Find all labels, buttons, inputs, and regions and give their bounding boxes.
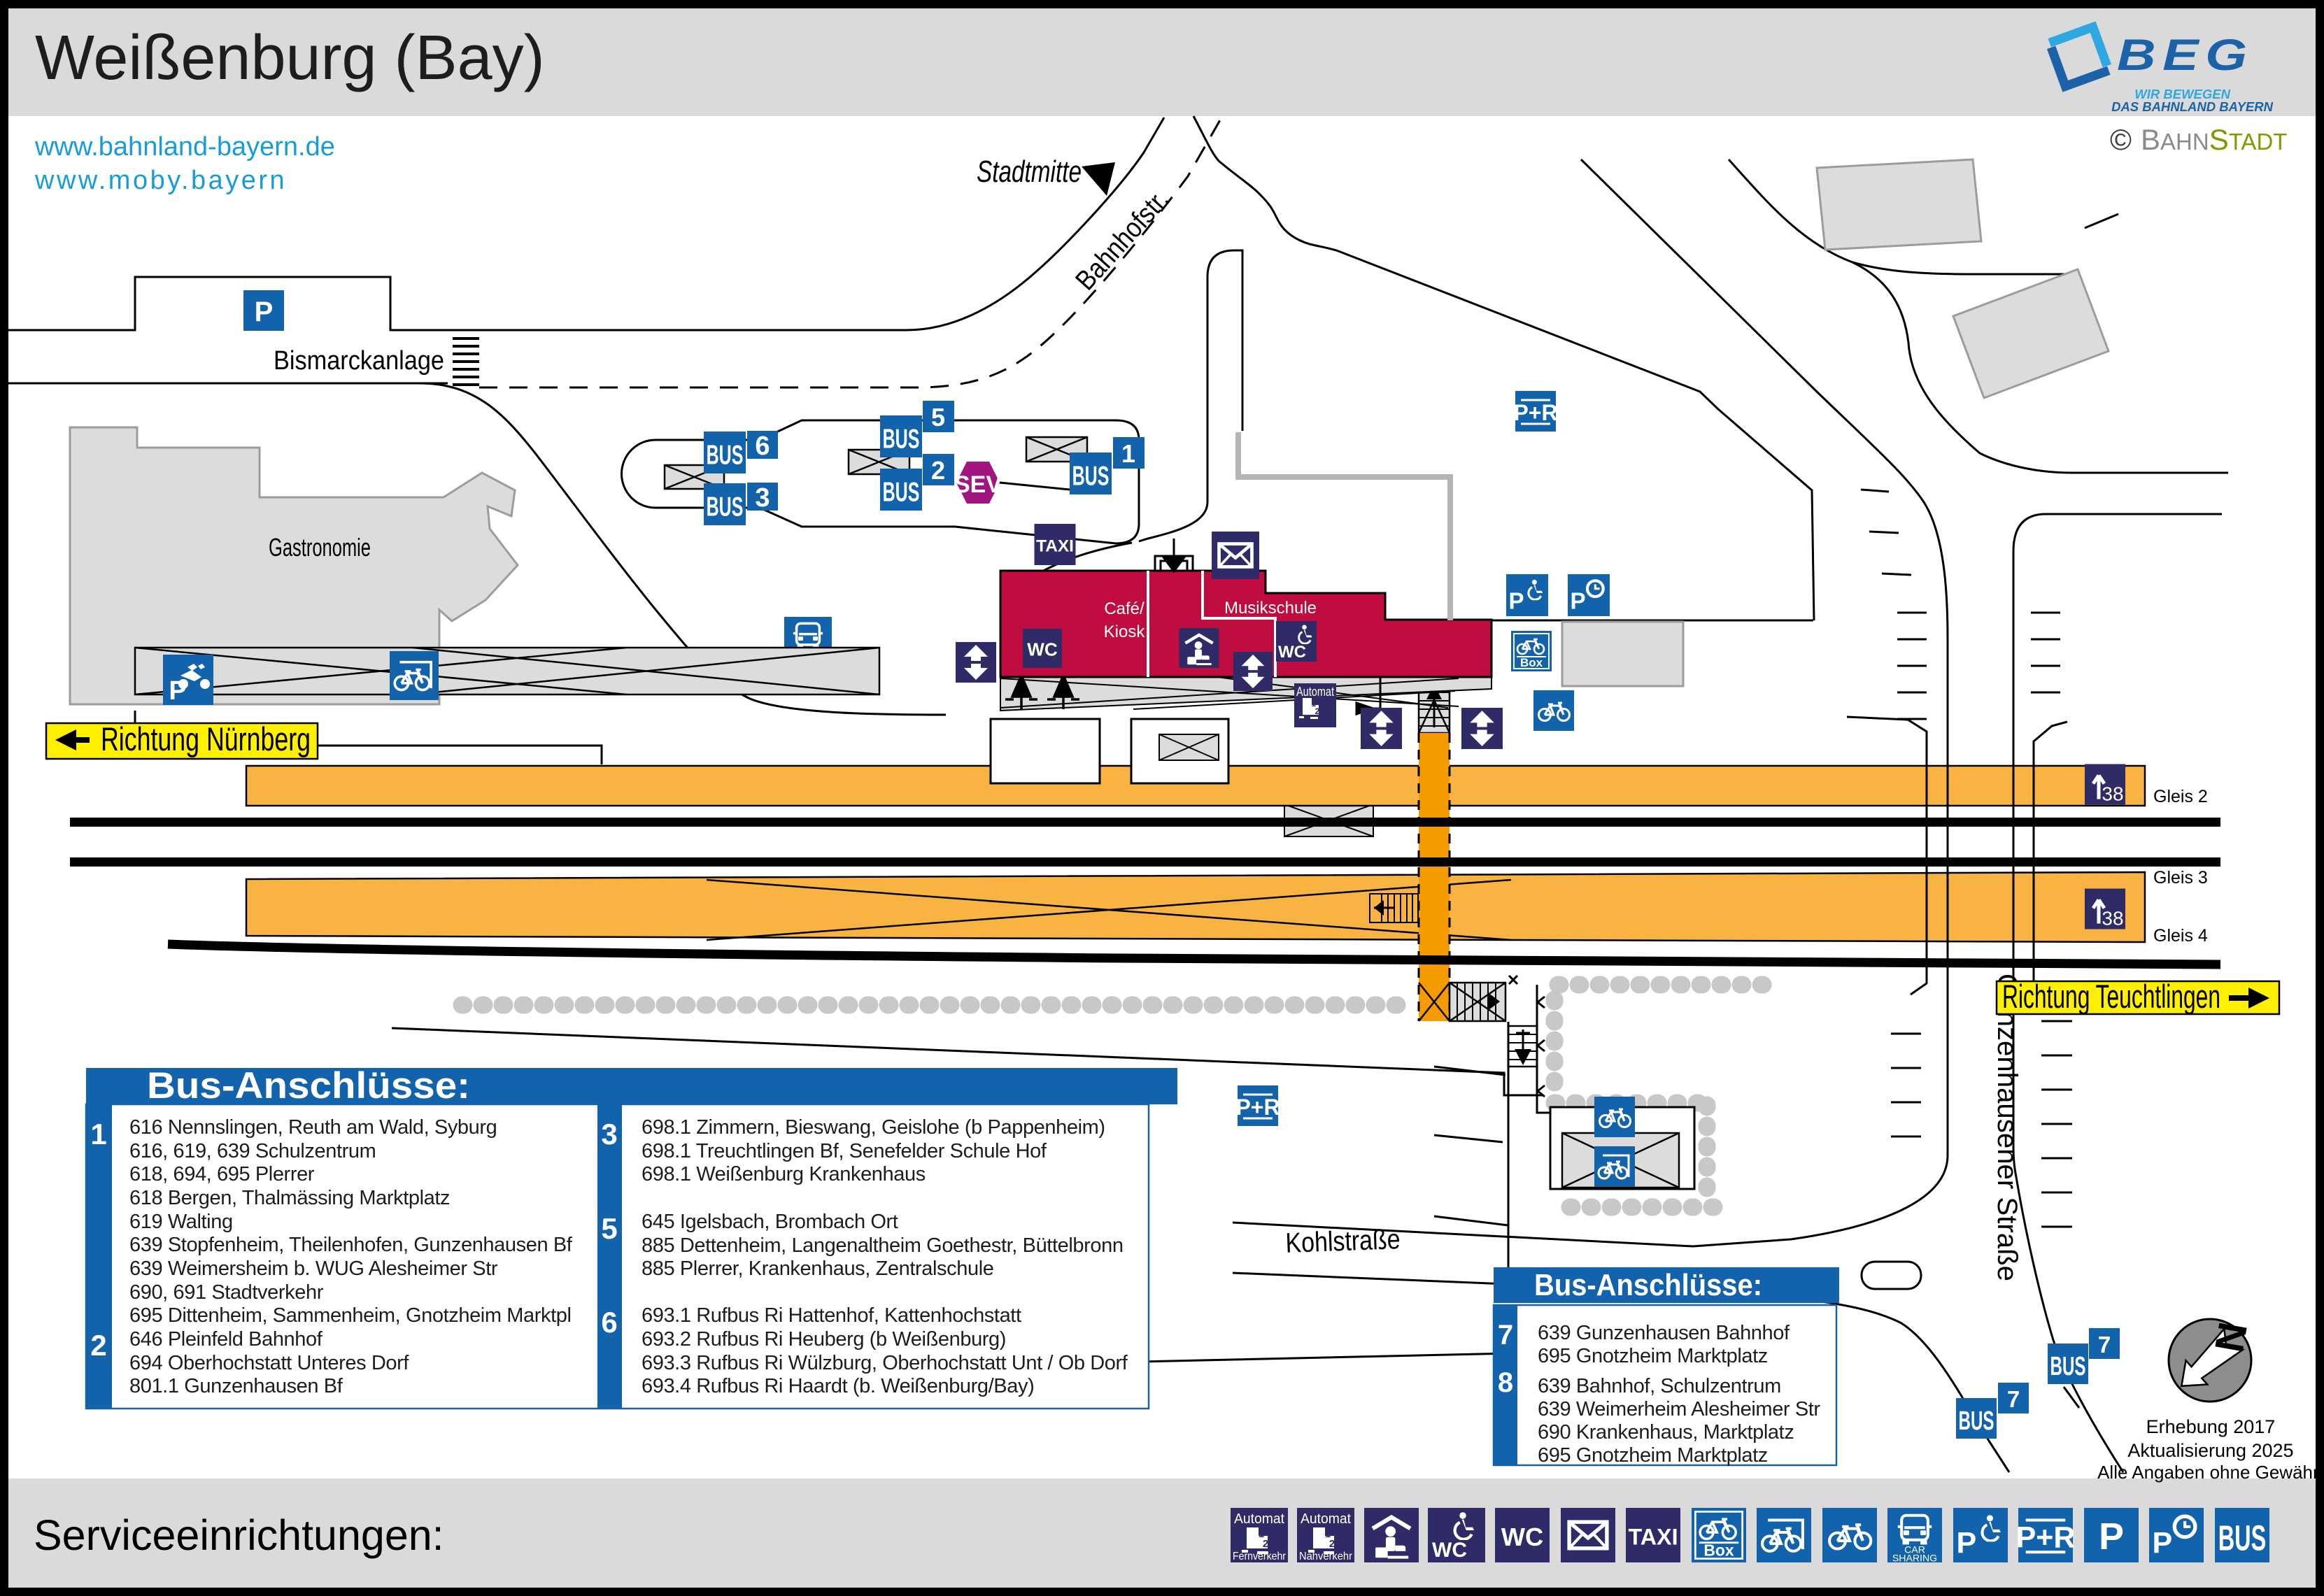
svg-text:Kohlstraße: Kohlstraße [1285, 1224, 1401, 1259]
svg-text:Automat: Automat [1234, 1511, 1284, 1527]
svg-text:3: 3 [755, 483, 770, 513]
svg-text:5: 5 [931, 403, 945, 432]
svg-text:698.1 Zimmern, Bieswang, Geisl: 698.1 Zimmern, Bieswang, Geislohe (b Pap… [642, 1116, 1105, 1139]
svg-text:Café/: Café/ [1104, 599, 1145, 618]
svg-text:619 Walting: 619 Walting [129, 1211, 233, 1233]
svg-text:695 Gnotzheim Marktplatz: 695 Gnotzheim Marktplatz [1538, 1444, 1768, 1467]
svg-text:639 Weimerheim Alesheimer Str: 639 Weimerheim Alesheimer Str [1538, 1398, 1820, 1420]
svg-text:2: 2 [1329, 1538, 1335, 1550]
svg-text:Bus-Anschlüsse:: Bus-Anschlüsse: [1534, 1268, 1762, 1302]
svg-text:WC: WC [1278, 643, 1306, 662]
svg-text:3: 3 [601, 1118, 617, 1150]
svg-text:5: 5 [601, 1212, 617, 1245]
svg-text:Weißenburg (Bay): Weißenburg (Bay) [35, 23, 545, 93]
svg-text:695 Gnotzheim Marktplatz: 695 Gnotzheim Marktplatz [1538, 1345, 1768, 1367]
svg-text:1: 1 [90, 1118, 106, 1150]
svg-text:Nahverkehr: Nahverkehr [1299, 1551, 1353, 1562]
svg-text:6: 6 [601, 1306, 617, 1339]
svg-text:693.4 Rufbus Ri Haardt (b. Wei: 693.4 Rufbus Ri Haardt (b. Weißenburg/Ba… [642, 1375, 1034, 1397]
svg-text:6: 6 [755, 432, 770, 461]
svg-text:639 Weimersheim b. WUG Aleshei: 639 Weimersheim b. WUG Alesheimer Str [129, 1257, 498, 1280]
svg-text:Musikschule: Musikschule [1224, 599, 1317, 618]
svg-text:Bismarckanlage: Bismarckanlage [274, 346, 444, 376]
svg-text:Serviceeinrichtungen:: Serviceeinrichtungen: [34, 1511, 444, 1559]
svg-text:693.2 Rufbus Ri Heuberg (b Wei: 693.2 Rufbus Ri Heuberg (b Weißenburg) [642, 1328, 1006, 1351]
svg-text:Richtung Nürnberg: Richtung Nürnberg [101, 720, 311, 757]
svg-text:Gastronomie: Gastronomie [269, 533, 371, 562]
svg-text:2: 2 [1315, 706, 1320, 716]
svg-text:885 Plerrer, Krankenhaus, Zent: 885 Plerrer, Krankenhaus, Zentralschule [642, 1257, 993, 1280]
svg-text:801.1 Gunzenhausen Bf: 801.1 Gunzenhausen Bf [129, 1375, 343, 1397]
svg-text:www.bahnland-bayern.de: www.bahnland-bayern.de [34, 132, 335, 162]
svg-text:SEV: SEV [954, 471, 1002, 498]
svg-text:693.1 Rufbus Ri Hattenhof, Kat: 693.1 Rufbus Ri Hattenhof, Kattenhochsta… [642, 1304, 1021, 1327]
svg-text:Automat: Automat [1301, 1511, 1351, 1527]
svg-text:Gleis 2: Gleis 2 [2153, 787, 2208, 806]
svg-text:1: 1 [1121, 439, 1135, 468]
svg-text:618, 694, 695 Plerrer: 618, 694, 695 Plerrer [129, 1163, 315, 1185]
svg-text:Richtung Teuchtlingen: Richtung Teuchtlingen [2002, 978, 2220, 1015]
svg-text:616 Nennslingen, Reuth am Wald: 616 Nennslingen, Reuth am Wald, Syburg [129, 1116, 497, 1139]
svg-text:693.3 Rufbus Ri Wülzburg, Ober: 693.3 Rufbus Ri Wülzburg, Oberhochstatt … [642, 1352, 1128, 1374]
svg-text:Erhebung 2017: Erhebung 2017 [2146, 1416, 2276, 1437]
svg-text:7: 7 [2007, 1386, 2020, 1412]
svg-text:698.1 Weißenburg Krankenhaus: 698.1 Weißenburg Krankenhaus [642, 1163, 926, 1185]
svg-text:645 Igelsbach, Brombach Ort: 645 Igelsbach, Brombach Ort [642, 1211, 898, 1233]
svg-text:646 Pleinfeld Bahnhof: 646 Pleinfeld Bahnhof [129, 1328, 323, 1351]
svg-text:698.1 Treuchtlingen Bf, Senefe: 698.1 Treuchtlingen Bf, Senefelder Schul… [642, 1140, 1047, 1162]
svg-text:616, 619, 639 Schulzentrum: 616, 619, 639 Schulzentrum [129, 1140, 376, 1162]
svg-text:639 Bahnhof, Schulzentrum: 639 Bahnhof, Schulzentrum [1538, 1375, 1781, 1397]
svg-text:BAHNSTADT: BAHNSTADT [2141, 123, 2287, 156]
svg-text:Automat: Automat [1296, 685, 1334, 699]
svg-text:Kiosk: Kiosk [1104, 622, 1146, 641]
svg-text:8: 8 [1498, 1367, 1513, 1398]
svg-text:639 Stopfenheim, Theilenhofen,: 639 Stopfenheim, Theilenhofen, Gunzenhau… [129, 1234, 573, 1256]
svg-text:Bus-Anschlüsse:: Bus-Anschlüsse: [147, 1065, 470, 1106]
svg-text:2: 2 [1263, 1538, 1268, 1550]
svg-text:Gleis 3: Gleis 3 [2153, 868, 2208, 888]
svg-text:DAS BAHNLAND BAYERN: DAS BAHNLAND BAYERN [2111, 99, 2274, 114]
svg-text:639 Gunzenhausen Bahnhof: 639 Gunzenhausen Bahnhof [1538, 1322, 1790, 1344]
svg-text:690, 691 Stadtverkehr: 690, 691 Stadtverkehr [129, 1281, 324, 1304]
svg-text:Stadtmitte: Stadtmitte [977, 155, 1082, 189]
svg-text:2: 2 [90, 1329, 106, 1362]
svg-text:7: 7 [1498, 1320, 1513, 1351]
svg-text:BEG: BEG [2117, 30, 2254, 80]
svg-text:2: 2 [931, 456, 945, 485]
svg-text:www.moby.bayern: www.moby.bayern [34, 166, 287, 195]
svg-text:694 Oberhochstatt Unteres Dorf: 694 Oberhochstatt Unteres Dorf [129, 1352, 409, 1374]
svg-text:7: 7 [2098, 1332, 2111, 1358]
svg-text:Fernverkehr: Fernverkehr [1233, 1551, 1287, 1562]
svg-text:Alle Angaben ohne Gewähr!: Alle Angaben ohne Gewähr! [2097, 1462, 2324, 1483]
svg-text:690 Krankenhaus, Marktplatz: 690 Krankenhaus, Marktplatz [1538, 1421, 1794, 1444]
svg-text:WC: WC [1432, 1539, 1467, 1562]
svg-text:695 Dittenheim, Sammenheim, Gn: 695 Dittenheim, Sammenheim, Gnotzheim Ma… [129, 1304, 572, 1327]
svg-text:©: © [2110, 123, 2132, 156]
svg-text:Gleis 4: Gleis 4 [2153, 926, 2208, 946]
svg-text:Gunzenhausener Straße: Gunzenhausener Straße [1992, 974, 2022, 1281]
svg-text:Aktualisierung 2025: Aktualisierung 2025 [2127, 1440, 2293, 1461]
svg-text:885 Dettenheim, Langenaltheim: 885 Dettenheim, Langenaltheim Goethestr,… [642, 1234, 1124, 1257]
svg-text:618 Bergen, Thalmässing Marktp: 618 Bergen, Thalmässing Marktplatz [129, 1187, 450, 1209]
